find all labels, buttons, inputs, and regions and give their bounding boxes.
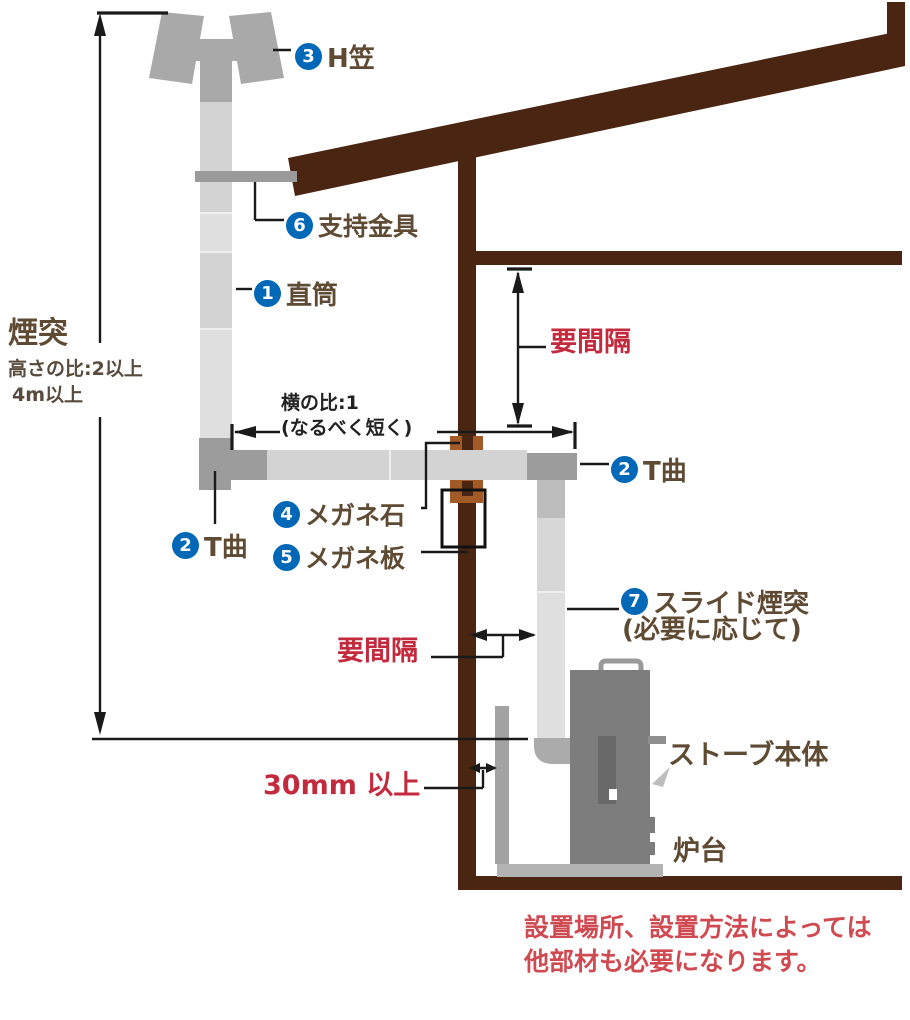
chimney-straight-pipe [200, 102, 232, 213]
callout-label: メガネ板 [305, 539, 405, 575]
callout-t-bend-right: 2 T曲 [611, 451, 687, 488]
h-cap-bar [188, 39, 245, 61]
slide-pipe [537, 480, 565, 518]
stove-damper-lever [648, 736, 666, 744]
callout-number-badge: 4 [273, 501, 300, 528]
callout-straight-pipe: 1 直筒 [254, 275, 338, 312]
slide-pipe [537, 518, 565, 592]
hearth-label: 炉台 [673, 838, 727, 866]
callout-number-badge: 6 [286, 212, 313, 239]
stove-handle [601, 661, 641, 671]
chimney-title: 煙突 [8, 318, 68, 350]
footnote-line1: 設置場所、設置方法によっては [524, 915, 872, 941]
callout-wall-plate: 5 メガネ板 [273, 539, 405, 575]
callout-label: T曲 [643, 451, 687, 488]
stove-elbow [534, 738, 570, 764]
callout-wall-thimble: 4 メガネ石 [273, 496, 405, 532]
horizontal-pipe [267, 450, 527, 480]
heat-shield [495, 706, 509, 864]
hearth-plate [497, 864, 663, 877]
roof [288, 30, 905, 196]
callout-label: 支持金具 [318, 207, 418, 243]
height-ratio-note: 高さの比:2以上 [8, 360, 143, 380]
horiz-short-note: (なるべく短く) [281, 419, 412, 439]
callout-label: T曲 [204, 527, 248, 564]
side-gap-label: 要間隔 [337, 638, 418, 666]
t-bend-left [199, 450, 267, 480]
chimney-straight-pipe [200, 252, 232, 329]
floor-gap-label: 30mm 以上 [263, 772, 420, 800]
wall-thimble-notch-top [462, 436, 473, 450]
callout-number-badge: 5 [273, 544, 300, 571]
floor [458, 876, 902, 890]
slide-pipe-sub-note: (必要に応じて) [622, 617, 802, 644]
horiz-ratio-note: 横の比:1 [281, 394, 359, 414]
h-cap-stem [200, 58, 232, 102]
stove-hinge [648, 842, 655, 855]
roof-ridge-stub [887, 2, 905, 35]
support-bracket-bar [195, 171, 297, 182]
callout-t-bend-left: 2 T曲 [172, 527, 248, 564]
chimney-installation-diagram: 煙突 高さの比:2以上 4m以上 3 H笠 6 支持金具 1 直筒 2 T曲 4… [0, 0, 910, 1020]
min-height-note: 4m以上 [12, 386, 83, 406]
chimney-straight-pipe [200, 329, 232, 438]
ceiling [467, 251, 902, 265]
callout-label: 直筒 [286, 275, 338, 312]
callout-number-badge: 7 [621, 588, 648, 615]
callout-number-badge: 2 [611, 456, 638, 483]
t-bend-right [527, 453, 577, 480]
stove-door-handle [609, 789, 617, 800]
callout-label: メガネ石 [305, 496, 405, 532]
callout-h-cap: 3 H笠 [295, 38, 375, 75]
footnote-line2: 他部材も必要になります。 [524, 949, 822, 975]
callout-support-bracket: 6 支持金具 [286, 207, 418, 243]
callout-number-badge: 2 [172, 532, 199, 559]
upper-gap-label: 要間隔 [550, 329, 631, 357]
callout-number-badge: 3 [295, 43, 322, 70]
callout-number-badge: 1 [254, 280, 281, 307]
diagram-artwork [0, 0, 910, 1020]
stove-hinge [648, 817, 655, 833]
chimney-straight-pipe [200, 213, 232, 252]
slide-pipe [537, 592, 565, 738]
stove-label: ストーブ本体 [668, 742, 828, 770]
callout-label: H笠 [327, 38, 375, 75]
